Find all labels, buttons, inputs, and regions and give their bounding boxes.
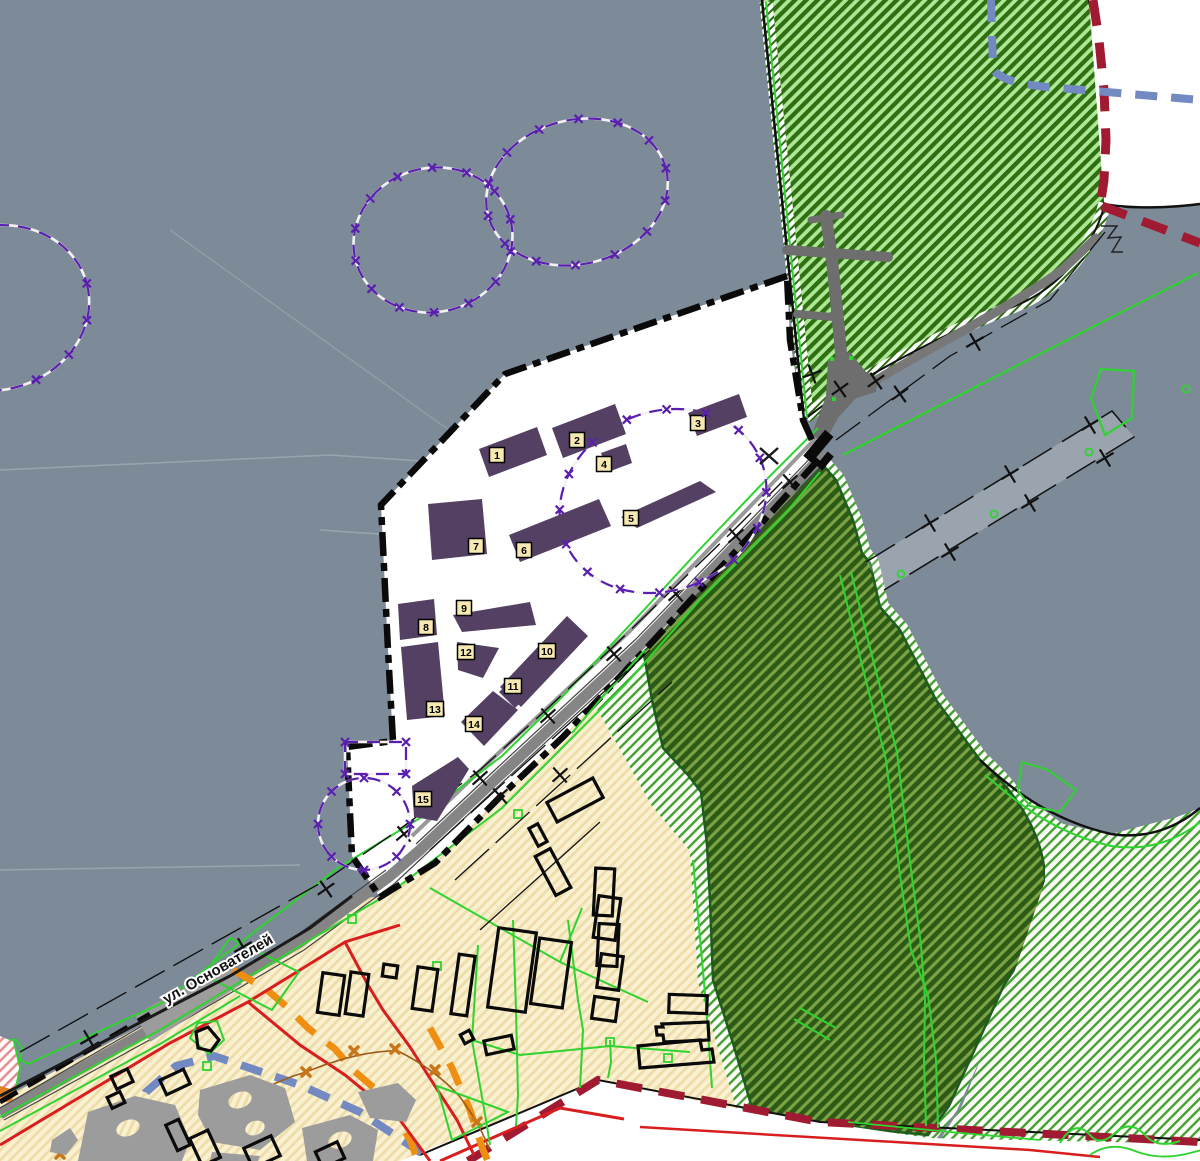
svg-text:14: 14 — [468, 719, 480, 731]
svg-text:1: 1 — [494, 450, 500, 462]
svg-text:9: 9 — [461, 603, 467, 615]
svg-text:11: 11 — [507, 681, 518, 693]
svg-text:5: 5 — [628, 513, 634, 525]
svg-text:13: 13 — [429, 704, 441, 716]
svg-text:12: 12 — [460, 647, 472, 659]
svg-text:15: 15 — [417, 794, 429, 806]
svg-text:2: 2 — [574, 435, 580, 447]
svg-text:7: 7 — [473, 541, 479, 553]
svg-text:8: 8 — [423, 622, 429, 634]
svg-text:4: 4 — [601, 459, 607, 471]
svg-text:3: 3 — [695, 418, 701, 430]
svg-text:6: 6 — [521, 545, 527, 557]
svg-text:10: 10 — [541, 646, 553, 658]
